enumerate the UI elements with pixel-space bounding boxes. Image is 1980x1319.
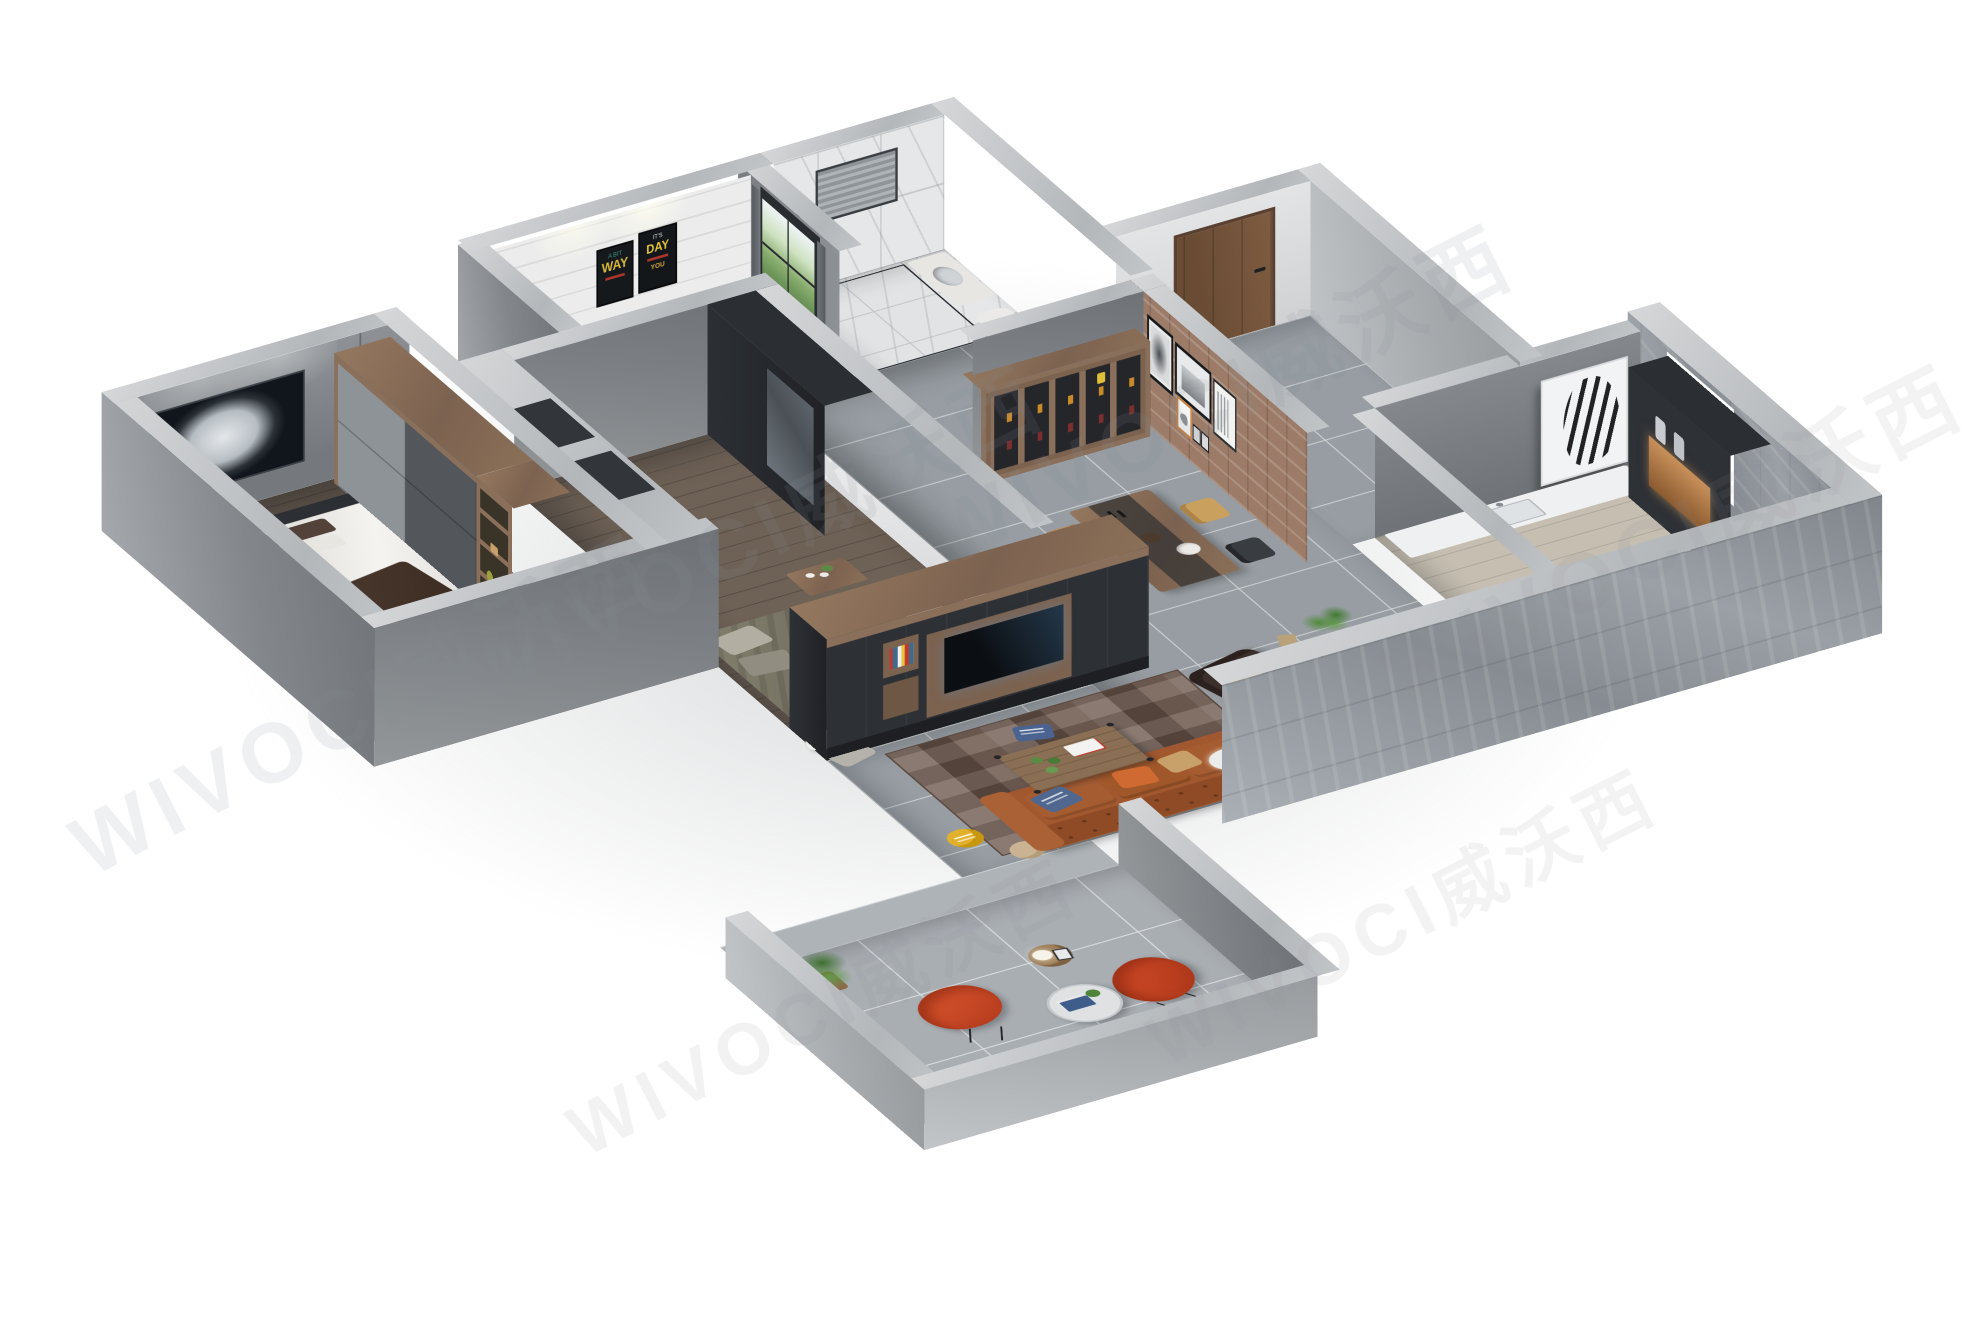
succulent-plants [1028,756,1046,765]
window-blind [816,147,898,224]
render-canvas: IT'S DAY YOU A BIT WAY [0,0,1980,1319]
poster1-bottom: YOU [640,256,675,274]
poster-frame-2: A BIT WAY [596,240,633,308]
wardrobe-frame-edge [334,353,338,486]
poster-frame-1: IT'S DAY YOU [638,222,677,294]
sink-basin [926,264,969,288]
coffee-table-books [1063,738,1105,756]
zebra-artwork [1541,356,1628,487]
stacked-books [1059,995,1097,1012]
